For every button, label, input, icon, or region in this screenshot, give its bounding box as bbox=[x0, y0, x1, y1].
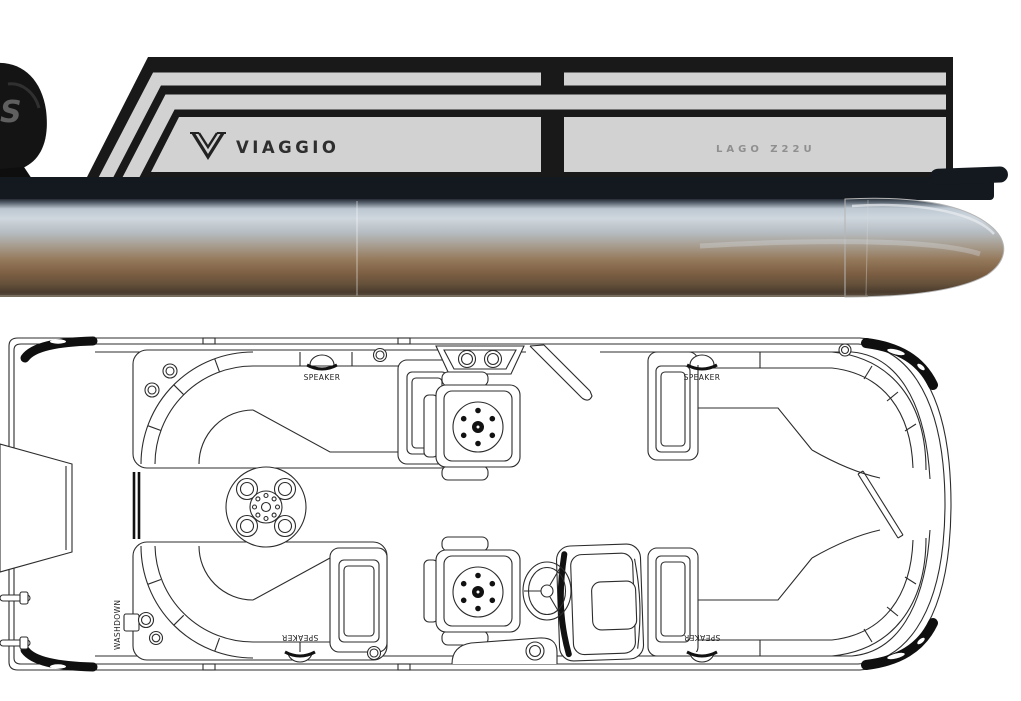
port-side-gate bbox=[134, 472, 139, 539]
entry-gate bbox=[530, 345, 592, 400]
nose-cone bbox=[845, 198, 1004, 297]
backrest-dividers bbox=[760, 352, 916, 431]
bow-starboard-lounge: SPEAKER bbox=[648, 530, 926, 662]
pontoon-tube bbox=[0, 198, 1004, 297]
helm-chair bbox=[424, 537, 520, 645]
boarding-ladder bbox=[0, 592, 30, 649]
chair-pedestal bbox=[453, 402, 503, 452]
model-text: LAGO Z22U bbox=[716, 144, 816, 155]
speaker-label-aft-starboard: SPEAKER bbox=[282, 633, 319, 642]
speaker-label-aft-port: SPEAKER bbox=[304, 373, 341, 382]
backrest-dividers bbox=[760, 577, 916, 656]
bow-gate bbox=[858, 471, 903, 538]
washdown-label: WASHDOWN bbox=[113, 600, 122, 650]
bow-port-lounge: SPEAKER bbox=[648, 352, 926, 478]
center-table bbox=[226, 467, 306, 547]
motor-badge: S bbox=[0, 95, 22, 130]
side-profile-view: S VIAGGIO LAGO Z22U bbox=[0, 0, 1021, 330]
companion-chair bbox=[424, 372, 520, 480]
speaker-label-bow-starboard: SPEAKER bbox=[684, 633, 721, 642]
aft-port-lounge: SPEAKER bbox=[133, 350, 455, 468]
speaker-label-bow-port: SPEAKER bbox=[684, 373, 721, 382]
brand-text: VIAGGIO bbox=[236, 138, 339, 157]
floor-plan-view: SPEAKER SPEAK bbox=[0, 330, 1021, 701]
table-pedestal bbox=[250, 491, 282, 523]
transom-motor-pod bbox=[0, 444, 72, 572]
speaker-icon-bow-starboard bbox=[687, 652, 717, 662]
armrest bbox=[330, 548, 387, 652]
outboard-motor: S bbox=[0, 63, 47, 184]
stern-gate-console bbox=[436, 346, 524, 374]
fence-panel: VIAGGIO LAGO Z22U bbox=[86, 57, 953, 183]
corner-bracket-stern-starboard bbox=[25, 650, 93, 669]
chair-pedestal bbox=[453, 567, 503, 617]
aft-starboard-lounge: SPEAKER bbox=[133, 542, 387, 662]
pontoon-brochure: S VIAGGIO LAGO Z22U bbox=[0, 0, 1021, 701]
corner-bracket-stern-port bbox=[25, 339, 93, 358]
